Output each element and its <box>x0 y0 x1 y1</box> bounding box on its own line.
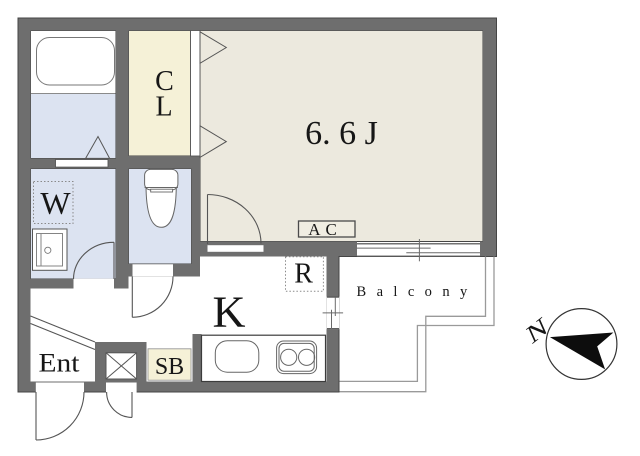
svg-text:L: L <box>155 91 172 122</box>
svg-text:AC: AC <box>308 220 342 239</box>
svg-text:Balcony: Balcony <box>357 284 478 300</box>
svg-text:6. 6 J: 6. 6 J <box>305 115 378 152</box>
svg-text:Ent: Ent <box>39 349 81 378</box>
svg-text:R: R <box>294 259 313 290</box>
svg-text:W: W <box>40 185 71 221</box>
svg-text:SB: SB <box>155 354 184 380</box>
svg-text:K: K <box>213 288 246 337</box>
